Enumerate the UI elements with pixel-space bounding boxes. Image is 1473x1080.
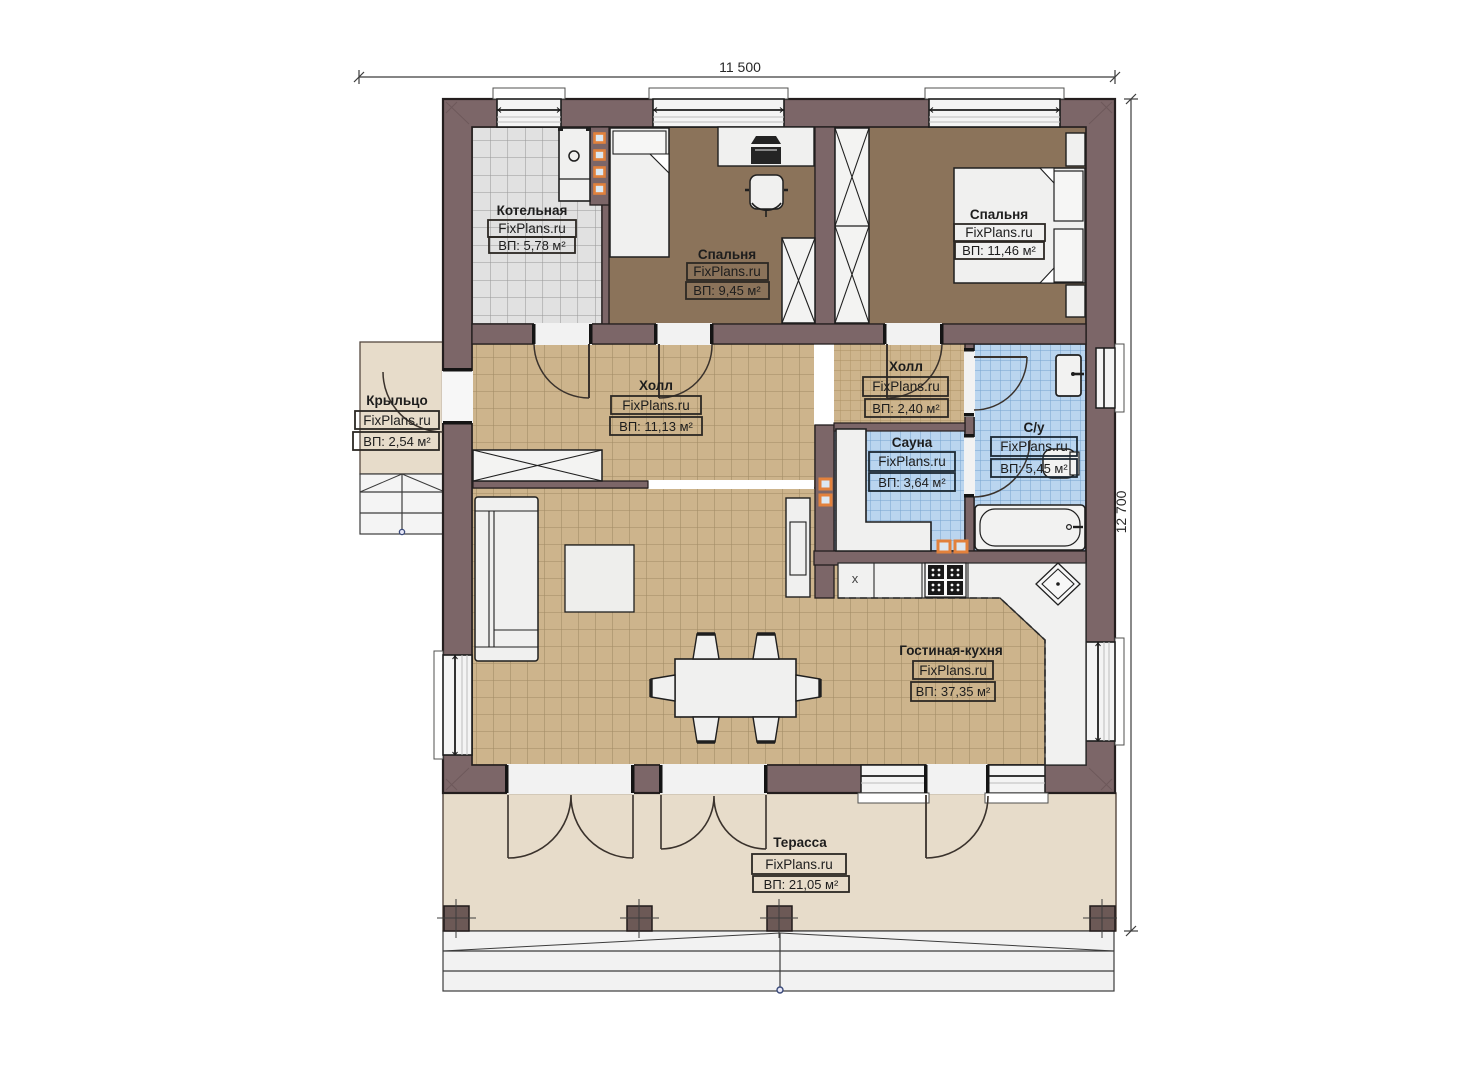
svg-text:FixPlans.ru: FixPlans.ru bbox=[765, 857, 833, 872]
svg-text:Холл: Холл bbox=[639, 378, 673, 393]
svg-text:FixPlans.ru: FixPlans.ru bbox=[965, 225, 1033, 240]
svg-text:Спальня: Спальня bbox=[698, 247, 756, 262]
svg-text:Сауна: Сауна bbox=[892, 435, 933, 450]
svg-text:ВП: 2,54 м²: ВП: 2,54 м² bbox=[363, 434, 431, 449]
svg-text:11 500: 11 500 bbox=[719, 59, 761, 75]
svg-text:ВП: 2,40 м²: ВП: 2,40 м² bbox=[872, 401, 940, 416]
svg-text:FixPlans.ru: FixPlans.ru bbox=[693, 264, 761, 279]
svg-text:Котельная: Котельная bbox=[497, 203, 568, 218]
svg-text:x: x bbox=[852, 571, 859, 586]
svg-text:ВП: 5,45 м²: ВП: 5,45 м² bbox=[1000, 461, 1068, 476]
svg-text:Спальня: Спальня bbox=[970, 207, 1028, 222]
svg-text:FixPlans.ru: FixPlans.ru bbox=[498, 221, 566, 236]
svg-text:ВП: 37,35 м²: ВП: 37,35 м² bbox=[916, 684, 991, 699]
svg-text:Холл: Холл bbox=[889, 359, 923, 374]
svg-text:Гостиная-кухня: Гостиная-кухня bbox=[899, 643, 1002, 658]
svg-text:ВП: 3,64 м²: ВП: 3,64 м² bbox=[878, 475, 946, 490]
svg-text:ВП: 5,78 м²: ВП: 5,78 м² bbox=[498, 238, 566, 253]
svg-text:FixPlans.ru: FixPlans.ru bbox=[878, 454, 946, 469]
svg-text:ВП: 11,13 м²: ВП: 11,13 м² bbox=[619, 419, 693, 434]
svg-text:ВП: 11,46 м²: ВП: 11,46 м² bbox=[962, 243, 1036, 258]
svg-text:FixPlans.ru: FixPlans.ru bbox=[622, 398, 690, 413]
svg-text:Крыльцо: Крыльцо bbox=[366, 393, 427, 408]
svg-text:Терасса: Терасса bbox=[773, 835, 827, 850]
svg-text:FixPlans.ru: FixPlans.ru bbox=[1000, 439, 1068, 454]
svg-text:ВП: 21,05 м²: ВП: 21,05 м² bbox=[764, 877, 839, 892]
svg-text:ВП: 9,45 м²: ВП: 9,45 м² bbox=[693, 283, 761, 298]
svg-text:FixPlans.ru: FixPlans.ru bbox=[363, 413, 431, 428]
svg-text:FixPlans.ru: FixPlans.ru bbox=[919, 663, 987, 678]
svg-text:12 700: 12 700 bbox=[1113, 490, 1129, 533]
svg-text:FixPlans.ru: FixPlans.ru bbox=[872, 379, 940, 394]
svg-text:С/у: С/у bbox=[1023, 420, 1045, 435]
